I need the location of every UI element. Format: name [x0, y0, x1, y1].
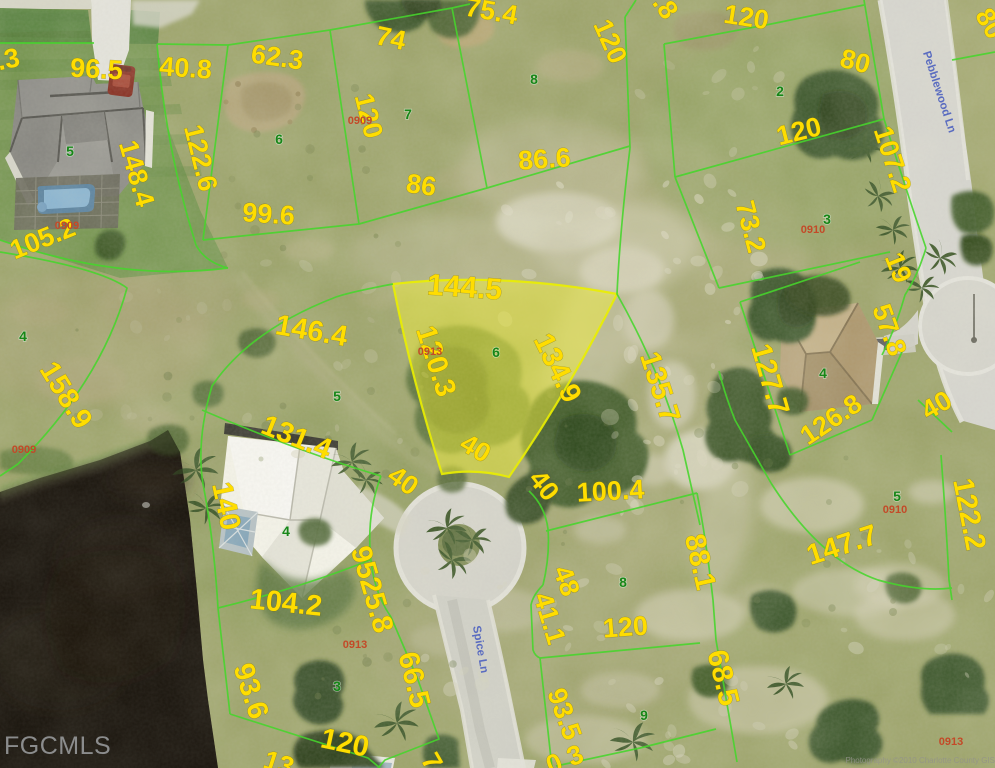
svg-text:5: 5	[333, 388, 341, 404]
svg-text:7: 7	[404, 106, 412, 122]
svg-text:9: 9	[640, 707, 648, 723]
svg-text:6: 6	[492, 344, 500, 360]
svg-text:0913: 0913	[418, 346, 442, 358]
svg-text:0909: 0909	[12, 444, 36, 456]
svg-text:0909: 0909	[348, 115, 372, 127]
svg-text:8: 8	[530, 71, 538, 87]
svg-text:3: 3	[333, 678, 341, 694]
svg-text:5: 5	[893, 488, 901, 504]
svg-text:0913: 0913	[939, 736, 963, 748]
svg-text:0910: 0910	[801, 224, 825, 236]
svg-text:74: 74	[373, 20, 409, 56]
svg-text:FGCMLS: FGCMLS	[4, 732, 111, 760]
svg-text:4: 4	[282, 523, 290, 539]
svg-text:Photography ©2010 Charlotte Co: Photography ©2010 Charlotte County GIS	[845, 756, 995, 765]
svg-text:99.6: 99.6	[241, 197, 296, 231]
svg-text:5: 5	[66, 143, 74, 159]
svg-text:0910: 0910	[883, 504, 907, 516]
svg-text:6: 6	[275, 131, 283, 147]
svg-text:8: 8	[619, 574, 627, 590]
svg-text:96.5: 96.5	[69, 53, 123, 86]
svg-text:144.5: 144.5	[426, 268, 503, 306]
svg-text:4: 4	[819, 365, 827, 381]
svg-text:2: 2	[776, 83, 784, 99]
svg-text:86.6: 86.6	[517, 142, 572, 176]
svg-text:0913: 0913	[343, 639, 367, 651]
svg-text:4: 4	[19, 328, 27, 344]
svg-text:40.8: 40.8	[158, 51, 213, 85]
svg-text:86: 86	[404, 168, 438, 202]
svg-text:0909: 0909	[55, 220, 79, 232]
svg-text:120: 120	[602, 610, 649, 643]
svg-text:100.4: 100.4	[576, 474, 645, 507]
